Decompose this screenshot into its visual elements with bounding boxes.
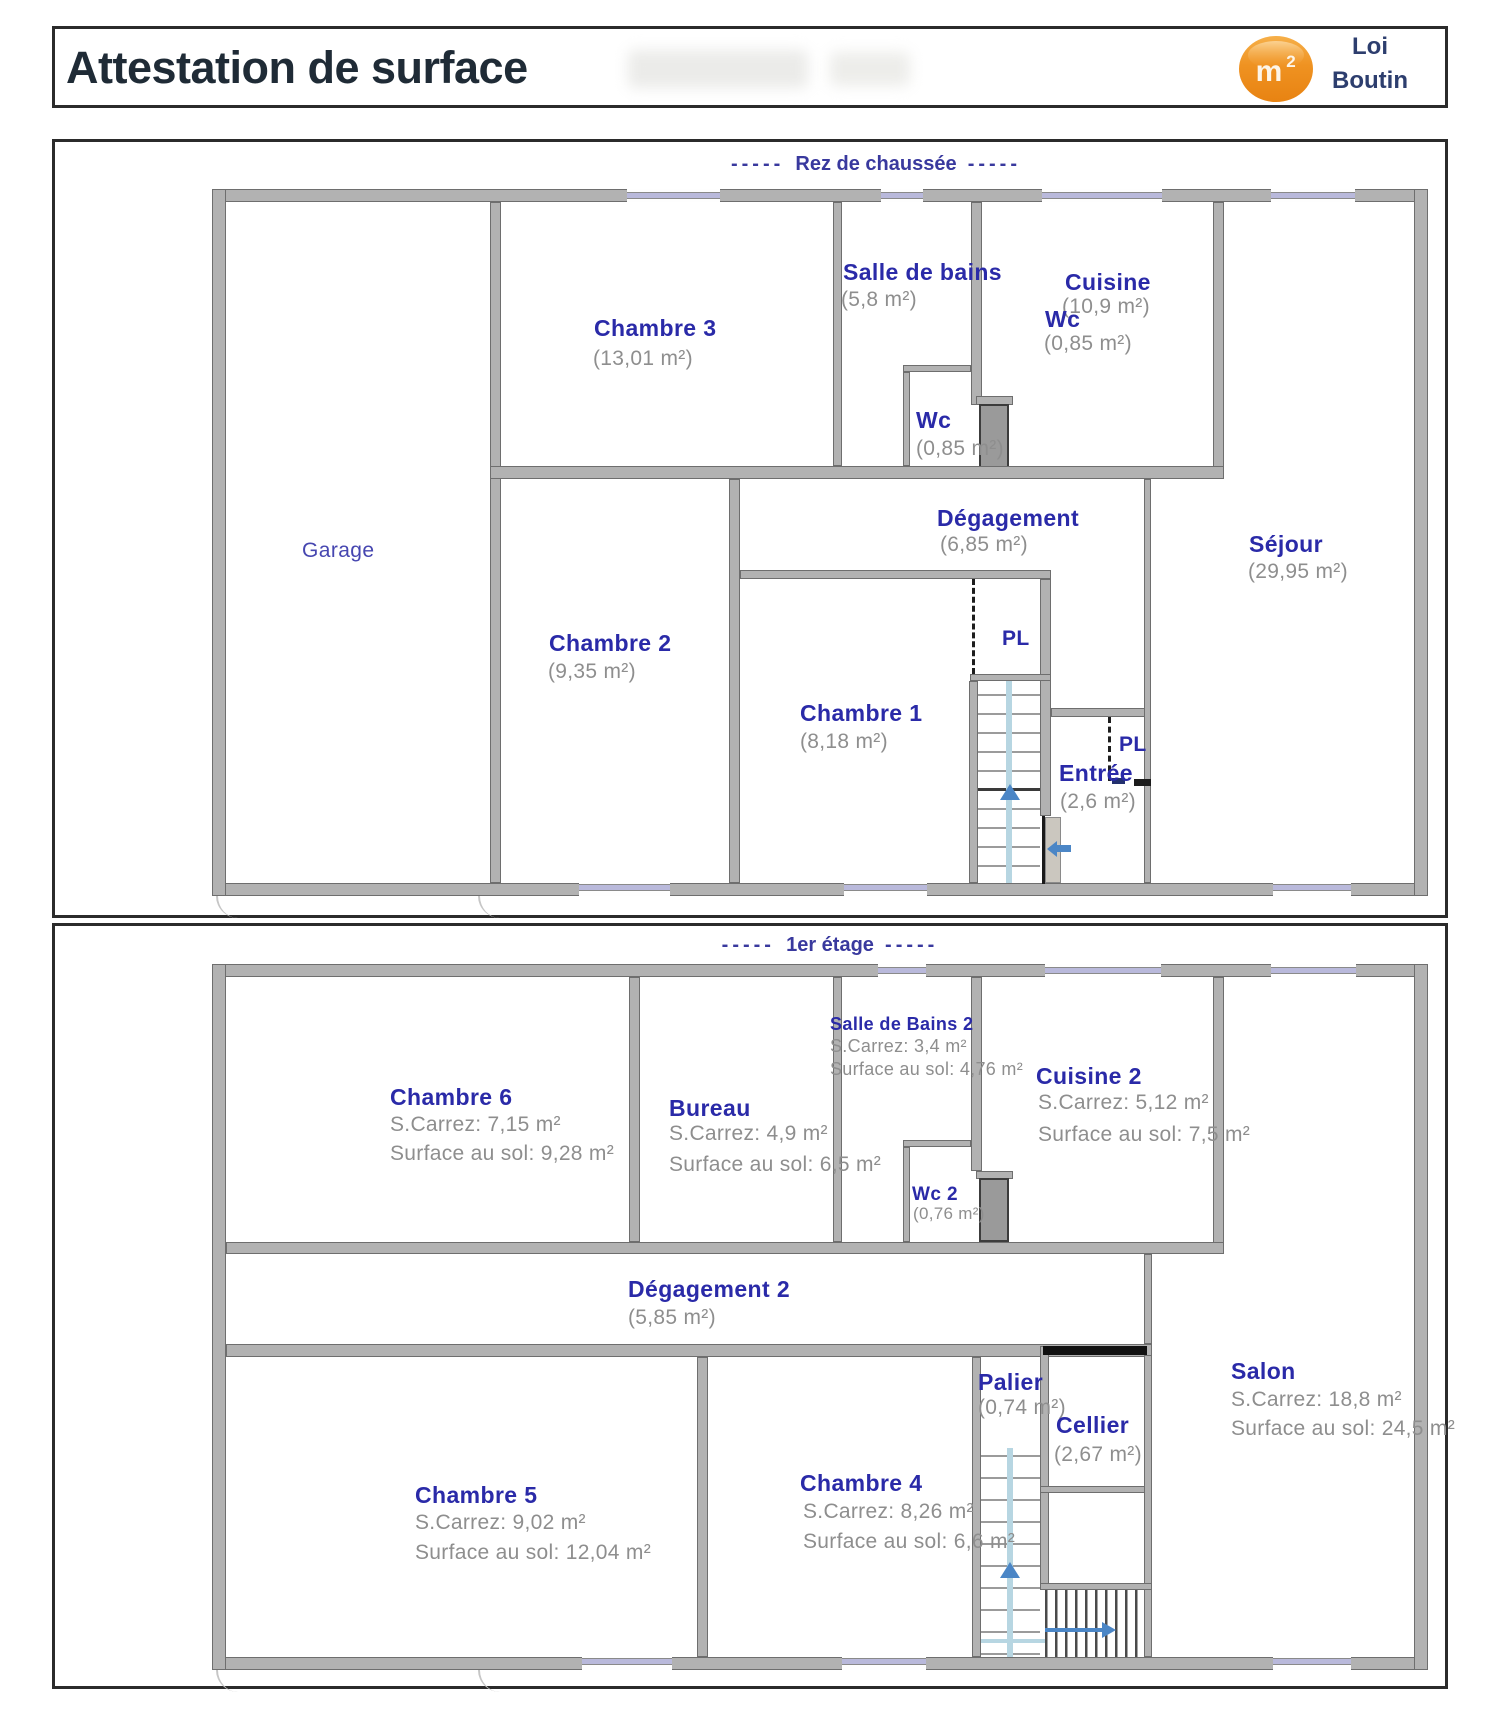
svg-text:2: 2 [1286, 52, 1295, 71]
svg-text:m: m [1256, 55, 1283, 88]
